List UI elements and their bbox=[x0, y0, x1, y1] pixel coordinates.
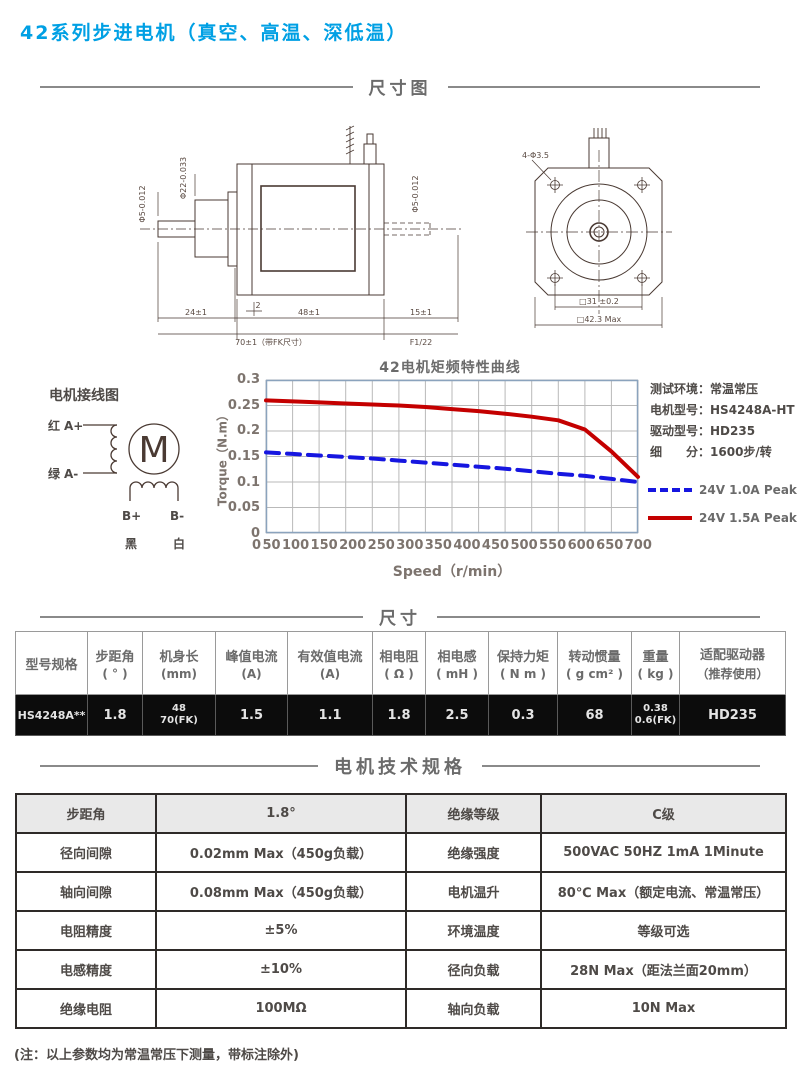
spec-label-cell: 绝缘等级 bbox=[406, 794, 541, 833]
chart-x-axis-title: Speed（r/min） bbox=[266, 561, 638, 581]
front-hole-label: 4-Φ3.5 bbox=[522, 151, 549, 160]
dim-col-header: 重量( kg ) bbox=[632, 632, 680, 695]
spec-value-cell: 0.08mm Max（450g负载） bbox=[156, 872, 406, 911]
dim-cell-line: 0.6(FK) bbox=[633, 715, 678, 728]
chart-x-tick-labels: 0501001502002503003504004505005506006507… bbox=[252, 538, 652, 553]
x-tick-label: 400 bbox=[453, 538, 480, 553]
x-tick-label: 200 bbox=[339, 538, 366, 553]
dim-boss-length: 24±1 bbox=[185, 308, 207, 317]
divider-line bbox=[40, 765, 318, 767]
info-label: 细 分： bbox=[650, 445, 710, 459]
info-label: 电机型号： bbox=[650, 403, 710, 417]
spec-label-cell: 电机温升 bbox=[406, 872, 541, 911]
dim-note: F1/22 bbox=[410, 338, 433, 347]
spec-row: 径向间隙0.02mm Max（450g负载）绝缘强度500VAC 50HZ 1m… bbox=[16, 833, 786, 872]
dim-col-unit: (A) bbox=[217, 667, 286, 681]
dim-col-unit: (A) bbox=[289, 667, 371, 681]
divider-line bbox=[437, 616, 760, 618]
dim-col-header: 步距角( ° ) bbox=[88, 632, 143, 695]
wire-black-label: 黑 bbox=[125, 537, 137, 551]
chart-legend: 24V 1.0A Peak24V 1.5A Peak bbox=[648, 476, 800, 532]
spec-value-cell: 等级可选 bbox=[541, 911, 786, 950]
spec-value-cell: 28N Max（距法兰面20mm） bbox=[541, 950, 786, 989]
x-tick-label: 350 bbox=[425, 538, 452, 553]
section-header-dimensions: 尺寸 bbox=[40, 604, 760, 629]
phase-a-plus: A+ bbox=[64, 419, 83, 433]
dim-cell: 1.8 bbox=[88, 695, 143, 736]
spec-value-cell: 0.02mm Max（450g负载） bbox=[156, 833, 406, 872]
dim-col-label: 机身长 bbox=[144, 646, 214, 665]
spec-label-cell: 环境温度 bbox=[406, 911, 541, 950]
dim-col-label: 相电感 bbox=[427, 646, 487, 665]
spec-value-cell: C级 bbox=[541, 794, 786, 833]
spec-label-cell: 绝缘电阻 bbox=[16, 989, 156, 1028]
dim-cell: 1.1 bbox=[288, 695, 373, 736]
dim-cell: 1.5 bbox=[216, 695, 288, 736]
legend-label: 24V 1.5A Peak bbox=[699, 511, 797, 525]
dimensions-table-body: HS4248A**1.84870(FK)1.51.11.82.50.3680.3… bbox=[16, 695, 786, 736]
phase-b-minus: B- bbox=[170, 509, 184, 523]
info-row: 测试环境：常温常压 bbox=[650, 379, 800, 400]
spec-value-cell: 100MΩ bbox=[156, 989, 406, 1028]
front-view-drawing: 4-Φ3.5 □31 ±0.2 □42.3 Max bbox=[520, 122, 735, 337]
dim-col-unit: (mm) bbox=[144, 667, 214, 681]
x-tick-label: 450 bbox=[482, 538, 509, 553]
divider-line bbox=[40, 86, 353, 88]
info-value: 1600步/转 bbox=[710, 445, 772, 459]
dim-col-header: 转动惯量( g cm² ) bbox=[558, 632, 632, 695]
spec-label-cell: 径向间隙 bbox=[16, 833, 156, 872]
y-tick-label: 0.25 bbox=[222, 398, 260, 413]
y-tick-label: 0.2 bbox=[222, 423, 260, 438]
motor-symbol: M bbox=[138, 430, 169, 471]
dim-cell: 68 bbox=[558, 695, 632, 736]
dim-cell: 4870(FK) bbox=[143, 695, 216, 736]
info-label: 驱动型号： bbox=[650, 424, 710, 438]
wire-white-label: 白 bbox=[173, 536, 185, 551]
info-value: HD235 bbox=[710, 424, 755, 438]
x-tick-label: 500 bbox=[510, 538, 537, 553]
wire-green-label: 绿 bbox=[48, 466, 61, 481]
dim-col-label: 有效值电流 bbox=[289, 646, 371, 665]
dim-shaft-length: 15±1 bbox=[410, 308, 432, 317]
section-title: 尺寸 bbox=[379, 604, 421, 629]
dim-col-label: 步距角 bbox=[89, 646, 141, 665]
dim-cell: 1.8 bbox=[373, 695, 426, 736]
dim-col-label: 转动惯量 bbox=[559, 646, 630, 665]
dim-data-row: HS4248A**1.84870(FK)1.51.11.82.50.3680.3… bbox=[16, 695, 786, 736]
dim-col-label: 重量 bbox=[633, 646, 678, 665]
wiring-diagram: 电机接线图 M 红 A+ 绿 A- B+ B- 黑 白 bbox=[35, 383, 235, 561]
section-title: 电机技术规格 bbox=[334, 753, 466, 779]
dim-boss-diameter: Φ22-0.033 bbox=[179, 157, 188, 199]
dim-col-header: 有效值电流(A) bbox=[288, 632, 373, 695]
dim-col-unit: ( ° ) bbox=[89, 667, 141, 681]
spec-label-cell: 绝缘强度 bbox=[406, 833, 541, 872]
spec-label-cell: 电感精度 bbox=[16, 950, 156, 989]
front-body-size: □42.3 Max bbox=[577, 315, 622, 324]
spec-row: 电阻精度±5%环境温度等级可选 bbox=[16, 911, 786, 950]
side-view-drawing: Φ5-0.012 Φ22-0.033 Φ5-0.012 24±1 2 48±1 … bbox=[128, 96, 498, 348]
x-tick-label: 600 bbox=[568, 538, 595, 553]
spec-value-cell: ±5% bbox=[156, 911, 406, 950]
y-tick-label: 0.1 bbox=[222, 475, 260, 490]
spec-value-cell: 80℃ Max（额定电流、常温常压） bbox=[541, 872, 786, 911]
spec-label-cell: 步距角 bbox=[16, 794, 156, 833]
spec-value-cell: ±10% bbox=[156, 950, 406, 989]
info-row: 电机型号：HS4248A-HT bbox=[650, 400, 800, 421]
section-header-motor-specs: 电机技术规格 bbox=[40, 753, 760, 779]
dim-col-label: 型号规格 bbox=[17, 654, 86, 673]
dim-col-header: 保持力矩( N m ) bbox=[489, 632, 558, 695]
chart-canvas bbox=[266, 380, 638, 533]
dim-col-header: 相电阻( Ω ) bbox=[373, 632, 426, 695]
spec-value-cell: 1.8° bbox=[156, 794, 406, 833]
dim-cell: 0.3 bbox=[489, 695, 558, 736]
chart-plot-area bbox=[266, 380, 638, 533]
dim-col-unit: ( mH ) bbox=[427, 667, 487, 681]
spec-row: 电感精度±10%径向负载28N Max（距法兰面20mm） bbox=[16, 950, 786, 989]
legend-swatch bbox=[648, 516, 692, 520]
spec-row: 轴向间隙0.08mm Max（450g负载）电机温升80℃ Max（额定电流、常… bbox=[16, 872, 786, 911]
dim-col-label: 保持力矩 bbox=[490, 646, 556, 665]
wire-red-label: 红 bbox=[48, 418, 60, 433]
chart-title: 42电机矩频特性曲线 bbox=[250, 357, 650, 377]
dim-cell: 2.5 bbox=[426, 695, 489, 736]
dim-col-unit: ( g cm² ) bbox=[559, 667, 630, 681]
phase-b-plus: B+ bbox=[122, 509, 141, 523]
chart-y-tick-labels: 0.30.250.20.150.10.050 bbox=[222, 372, 260, 541]
spec-table: 步距角1.8°绝缘等级C级径向间隙0.02mm Max（450g负载）绝缘强度5… bbox=[15, 793, 787, 1029]
dim-cell: HD235 bbox=[680, 695, 786, 736]
info-row: 驱动型号：HD235 bbox=[650, 421, 800, 442]
spec-row: 绝缘电阻100MΩ轴向负载10N Max bbox=[16, 989, 786, 1028]
spec-label-cell: 轴向间隙 bbox=[16, 872, 156, 911]
x-tick-label: 0 bbox=[252, 538, 261, 553]
x-tick-label: 300 bbox=[396, 538, 423, 553]
x-tick-label: 700 bbox=[625, 538, 652, 553]
dim-plate-thickness: 2 bbox=[255, 301, 260, 310]
phase-a-minus: A- bbox=[64, 467, 78, 481]
dim-shaft-diameter: Φ5-0.012 bbox=[138, 185, 147, 222]
spec-row: 步距角1.8°绝缘等级C级 bbox=[16, 794, 786, 833]
legend-row: 24V 1.5A Peak bbox=[648, 504, 800, 532]
divider-line bbox=[482, 765, 760, 767]
spec-value-cell: 500VAC 50HZ 1mA 1Minute bbox=[541, 833, 786, 872]
dim-total-length: 70±1（带FK尺寸） bbox=[235, 337, 307, 347]
info-row: 细 分：1600步/转 bbox=[650, 442, 800, 463]
front-hole-pitch: □31 ±0.2 bbox=[579, 297, 619, 306]
dim-col-label: 相电阻 bbox=[374, 646, 424, 665]
spec-label-cell: 轴向负载 bbox=[406, 989, 541, 1028]
info-value: 常温常压 bbox=[710, 382, 758, 396]
dimensions-table-header-row: 型号规格步距角( ° )机身长(mm)峰值电流(A)有效值电流(A)相电阻( Ω… bbox=[16, 632, 786, 695]
info-label: 测试环境： bbox=[650, 382, 710, 396]
dim-rear-shaft-diameter: Φ5-0.012 bbox=[411, 175, 420, 212]
wiring-title: 电机接线图 bbox=[49, 387, 119, 404]
dim-body-length: 48±1 bbox=[298, 308, 320, 317]
dim-cell: 0.380.6(FK) bbox=[632, 695, 680, 736]
dim-col-unit: ( Ω ) bbox=[374, 667, 424, 681]
x-tick-label: 550 bbox=[539, 538, 566, 553]
dim-col-header: 型号规格 bbox=[16, 632, 88, 695]
dim-col-header: 机身长(mm) bbox=[143, 632, 216, 695]
dim-cell-line: 0.38 bbox=[633, 703, 678, 716]
y-tick-label: 0.15 bbox=[222, 449, 260, 464]
dimensions-table: 型号规格步距角( ° )机身长(mm)峰值电流(A)有效值电流(A)相电阻( Ω… bbox=[15, 631, 786, 736]
datasheet-page: 42系列步进电机（真空、高温、深低温） 尺寸图 Φ5-0.012 Φ22-0.0… bbox=[0, 0, 800, 1071]
dim-cell-line: 70(FK) bbox=[144, 715, 214, 728]
info-value: HS4248A-HT bbox=[710, 403, 795, 417]
page-title: 42系列步进电机（真空、高温、深低温） bbox=[20, 18, 407, 45]
dim-col-unit: ( N m ) bbox=[490, 667, 556, 681]
dim-col-label: 峰值电流 bbox=[217, 646, 286, 665]
y-tick-label: 0.05 bbox=[222, 500, 260, 515]
dim-col-unit: ( kg ) bbox=[633, 667, 678, 681]
dim-col-unit: （推荐使用） bbox=[681, 665, 784, 682]
footnote: (注：以上参数均为常温常压下测量，带标注除外) bbox=[14, 1044, 299, 1063]
x-tick-label: 650 bbox=[596, 538, 623, 553]
x-tick-label: 150 bbox=[311, 538, 338, 553]
spec-label-cell: 电阻精度 bbox=[16, 911, 156, 950]
legend-swatch bbox=[648, 488, 692, 492]
dim-col-header: 适配驱动器（推荐使用） bbox=[680, 632, 786, 695]
spec-table-body: 步距角1.8°绝缘等级C级径向间隙0.02mm Max（450g负载）绝缘强度5… bbox=[16, 794, 786, 1028]
x-tick-label: 50 bbox=[262, 538, 280, 553]
x-tick-label: 100 bbox=[282, 538, 309, 553]
divider-line bbox=[448, 86, 761, 88]
spec-value-cell: 10N Max bbox=[541, 989, 786, 1028]
y-tick-label: 0.3 bbox=[222, 372, 260, 387]
dim-cell: HS4248A** bbox=[16, 695, 88, 736]
dim-col-header: 相电感( mH ) bbox=[426, 632, 489, 695]
legend-row: 24V 1.0A Peak bbox=[648, 476, 800, 504]
x-tick-label: 250 bbox=[368, 538, 395, 553]
test-conditions-panel: 测试环境：常温常压 电机型号：HS4248A-HT 驱动型号：HD235 细 分… bbox=[650, 379, 800, 463]
dim-col-label: 适配驱动器 bbox=[681, 644, 784, 663]
legend-label: 24V 1.0A Peak bbox=[699, 483, 797, 497]
divider-line bbox=[40, 616, 363, 618]
spec-label-cell: 径向负载 bbox=[406, 950, 541, 989]
dim-col-header: 峰值电流(A) bbox=[216, 632, 288, 695]
dim-cell-line: 48 bbox=[144, 703, 214, 716]
